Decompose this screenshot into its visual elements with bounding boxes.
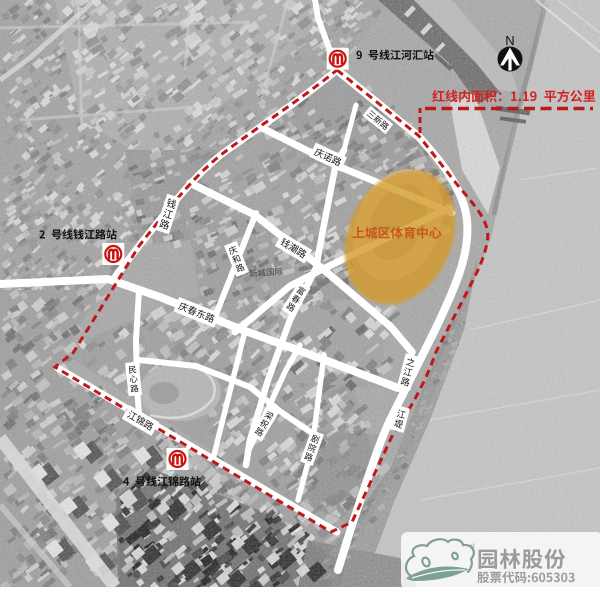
svg-text:N: N	[505, 33, 514, 48]
svg-text:®: ®	[470, 543, 476, 551]
